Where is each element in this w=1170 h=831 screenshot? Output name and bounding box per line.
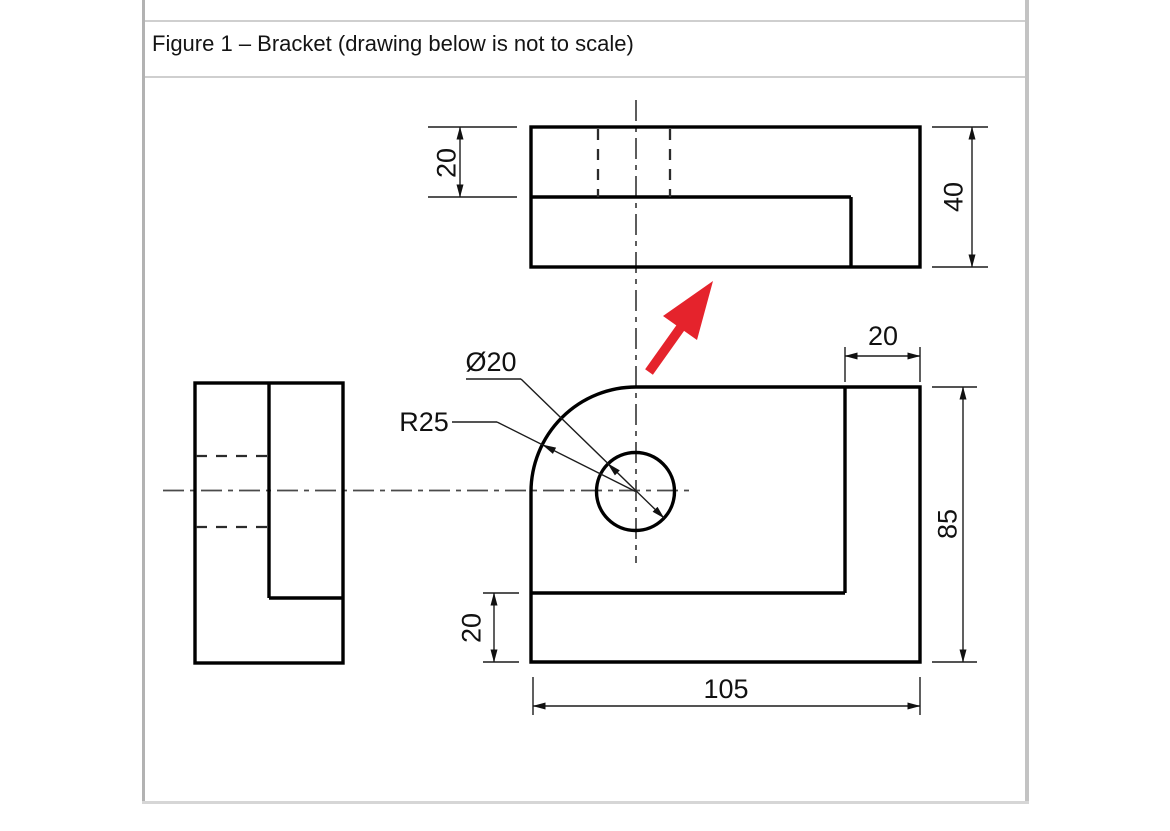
dim-label-front-base: 20 [456,613,486,643]
red-direction-arrow [649,281,713,372]
technical-drawing: 20 40 20 85 20 105 Ø20 [0,0,1170,831]
dim-label-front-wall: 20 [868,321,898,351]
hole-diameter-dimension: Ø20 [465,347,664,518]
top-view [531,127,920,267]
dim-label-top-view-total: 40 [938,182,968,212]
side-view [195,383,343,663]
dim-label-front-height: 85 [932,509,962,539]
centerlines [163,100,694,563]
leader-diagonal [521,379,664,518]
red-arrow-shaft [649,327,681,372]
red-arrow-head [663,281,713,340]
dimensions: 20 40 20 85 20 105 Ø20 [399,127,988,715]
dim-label-hole-diameter: Ø20 [465,347,516,377]
front-view [531,387,920,662]
leader-arrowhead [542,445,556,454]
dim-label-top-view-height: 20 [431,148,461,178]
front-view-outline [531,387,920,662]
dim-label-corner-radius: R25 [399,407,449,437]
dim-label-front-width: 105 [703,674,748,704]
